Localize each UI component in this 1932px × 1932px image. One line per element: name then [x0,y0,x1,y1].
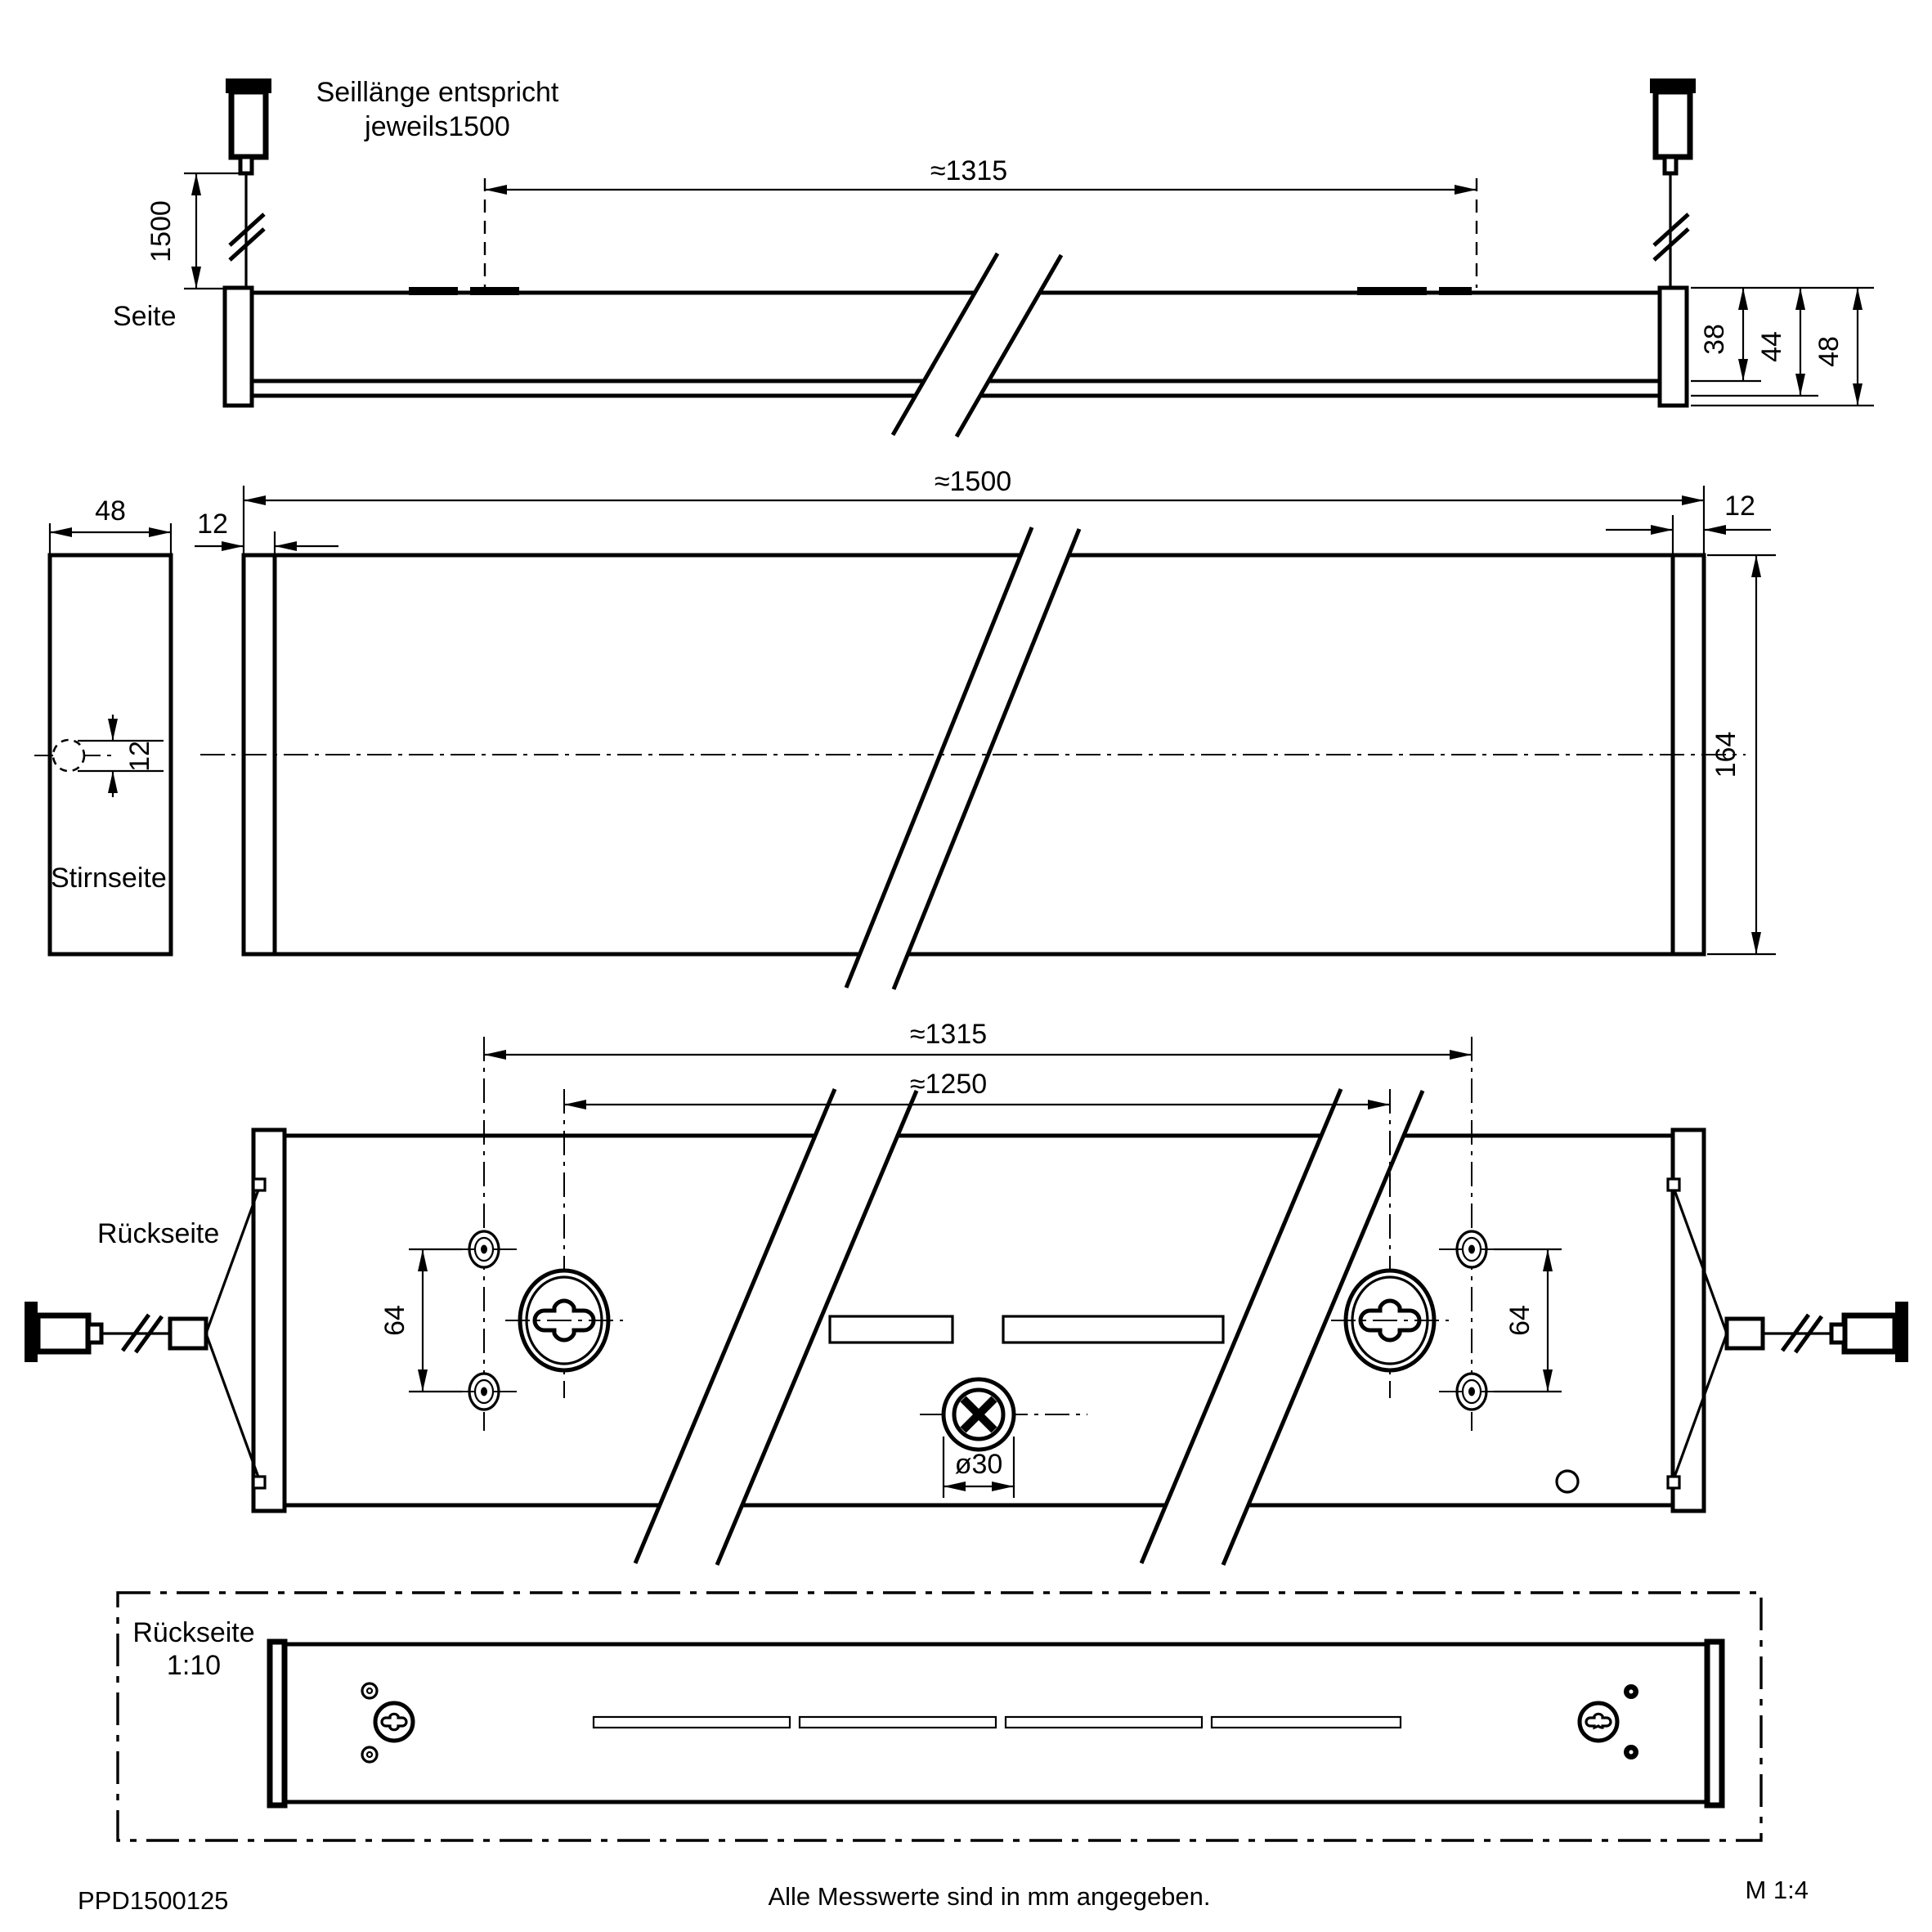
rect-shape [1831,1325,1845,1343]
drawing-number: PPD1500125 [78,1886,228,1915]
rect-shape [1656,92,1690,157]
technical-drawing-page: Seillänge entspricht jeweils1500 1500 ≈1… [0,0,1932,1932]
dim-total-height-text: 48 [1813,336,1845,367]
rect-shape [253,1179,265,1190]
dim-left-hole-spacing-text: 64 [379,1305,410,1336]
circle-shape [1629,1690,1634,1694]
dim-left-end-cap-text: 12 [197,509,228,540]
rect-shape [240,157,252,173]
dim-left-end-cap: 12 [195,509,338,555]
footer: PPD1500125 Alle Messwerte sind in mm ang… [78,1876,1809,1915]
top-fixture-body [200,527,1746,989]
rect-shape [1727,1319,1763,1348]
slot-icon [594,1717,790,1728]
dim-diffuser-height-text: 44 [1756,331,1787,362]
circle-shape [1629,1750,1634,1755]
slot-icon [1212,1717,1401,1728]
back-fixture-body [253,1089,1704,1565]
back-slots [830,1316,1223,1343]
rect-shape [1668,1179,1679,1190]
break-line-icon [894,529,1079,989]
dim-total-length-text: ≈1500 [935,466,1011,497]
left-keyhole-icon [505,1271,623,1370]
grommet-icon [362,1747,377,1762]
suspension-note-line1: Seillänge entspricht [316,77,559,108]
small-slots [594,1717,1401,1728]
left-canopy-icon [226,78,271,288]
back-view-label: Rückseite [97,1218,219,1249]
front-view-label: Stirnseite [51,863,167,894]
dim-cable-length: 1500 [146,173,242,289]
hidden-hole-icon [53,740,84,771]
back-view: Rückseite ≈1315 ≈1250 [25,1019,1908,1565]
front-view: 48 12 Stirnseite [34,495,171,954]
small-left-fittings [362,1683,413,1762]
rect-shape [38,1316,88,1352]
dim-suspension-spacing-back-text: ≈1315 [910,1019,987,1050]
rect-shape [1845,1316,1895,1352]
dim-cable-length-text: 1500 [146,200,177,262]
side-view-label: Seite [113,301,177,332]
side-right-end-cap [1660,288,1687,406]
dim-left-hole-spacing: 64 [379,1249,462,1392]
break-line-icon [893,253,997,435]
right-canopy-icon [1650,78,1696,288]
dim-keyhole-spacing-text: ≈1250 [910,1069,987,1100]
dim-front-width: 48 [50,495,171,555]
rect-shape [231,92,266,157]
back-small-label-line2: 1:10 [167,1650,221,1681]
dim-suspension-spacing-side: ≈1315 [485,155,1477,288]
dim-suspension-spacing-side-text: ≈1315 [930,155,1007,186]
dim-housing-height-text: 38 [1699,324,1730,355]
side-fixture-body [225,253,1687,437]
suspension-note-line2: jeweils1500 [364,111,510,142]
small-right-fittings [1580,1684,1638,1759]
dim-cable-entry-text: ø30 [955,1449,1003,1480]
back-small-label-line1: Rückseite [132,1617,254,1648]
break-line-icon [635,1089,835,1563]
dim-fixture-width-text: 164 [1710,732,1741,778]
scale-label: M 1:4 [1745,1876,1809,1904]
break-line-icon [846,527,1032,988]
small-right-end-cap [1707,1642,1722,1805]
right-keyhole-icon [1331,1271,1449,1370]
rect-shape [253,1477,265,1488]
units-note: Alle Messwerte sind in mm angegeben. [768,1882,1210,1911]
side-left-end-cap [225,288,252,406]
rect-shape [1668,1477,1679,1488]
small-left-end-cap [270,1642,285,1805]
slot-icon [1006,1717,1202,1728]
dim-front-width-text: 48 [95,495,126,527]
slot-icon [830,1316,953,1343]
dim-right-hole-spacing: 64 [1494,1249,1562,1392]
dim-right-end-cap-text: 12 [1724,491,1755,522]
rect-shape [1665,157,1676,173]
dim-total-length: ≈1500 [244,466,1704,555]
back-small-view: Rückseite 1:10 [118,1593,1761,1840]
dim-side-heights: 38 44 48 [1691,288,1874,406]
dim-keyhole-spacing: ≈1250 [564,1069,1390,1398]
top-view: ≈1500 12 12 164 [195,466,1776,989]
dim-fixture-width: 164 [1707,555,1776,954]
dim-right-hole-spacing-text: 64 [1504,1305,1535,1336]
break-line-icon [957,255,1061,437]
cable-entry-hole: ø30 [920,1379,1087,1498]
small-hole-icon [1557,1471,1578,1492]
side-view: Seillänge entspricht jeweils1500 1500 ≈1… [113,77,1874,437]
grommet-icon [362,1683,377,1698]
slot-icon [800,1717,996,1728]
drawing-svg: Seillänge entspricht jeweils1500 1500 ≈1… [0,0,1932,1932]
rect-shape [170,1319,206,1348]
rect-shape [88,1325,101,1343]
dim-cable-hole-text: 12 [124,741,155,772]
slot-icon [1003,1316,1223,1343]
